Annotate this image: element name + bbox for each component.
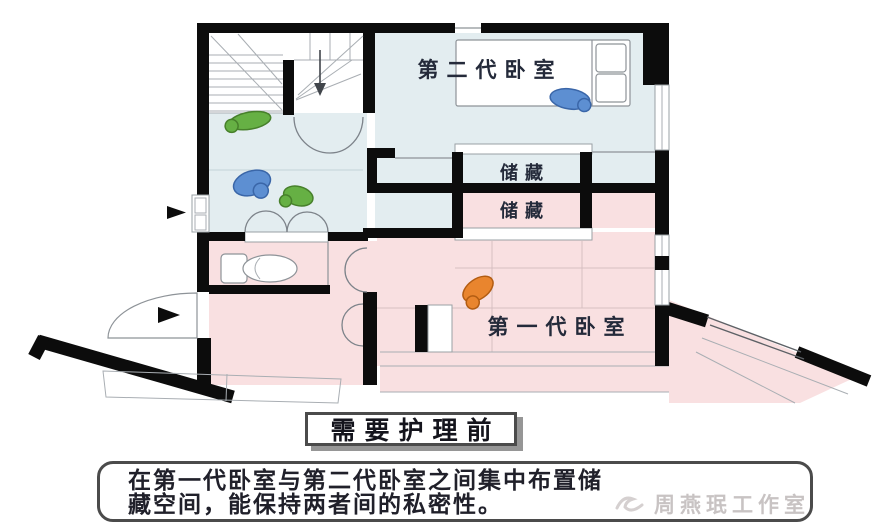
closet-bottom-floor: [592, 191, 655, 228]
entry-arrow-icon: [167, 206, 186, 219]
entrance-door-swing: [108, 293, 197, 338]
wall-porch-corner: [34, 338, 44, 357]
storage-top-track: [455, 144, 592, 154]
phase-title-text: 需要护理前: [321, 411, 500, 447]
stair-center-stub: [283, 60, 294, 115]
wall-entrance-divider: [363, 292, 377, 385]
bedroom2-label: 第二代卧室: [418, 58, 563, 82]
wall-bedroom1-pillar: [415, 305, 428, 352]
wall-left-upper: [197, 23, 209, 195]
wall-storage-right-bottom: [580, 191, 592, 228]
wall-stair-divider: [363, 33, 375, 113]
storage-top-label: 储藏: [499, 162, 550, 184]
bed-pillow-2: [596, 74, 626, 102]
wall-left-lower: [197, 338, 211, 385]
window-right-mullion: [655, 256, 669, 270]
bed-pillow-1: [596, 44, 626, 72]
watermark: 周燕珉工作室: [612, 489, 810, 519]
wall-corner-topright: [643, 23, 669, 85]
veranda-floor: [380, 366, 669, 392]
watermark-text: 周燕珉工作室: [654, 489, 810, 519]
wall-top: [197, 23, 668, 33]
watermark-bird-icon: [612, 491, 648, 517]
wall-storage-right-top: [580, 152, 592, 183]
floor-plan: 第二代卧室 储藏 储藏 第一代卧室: [0, 0, 882, 410]
closet-threshold: [245, 232, 328, 242]
wall-hall-south-right: [328, 232, 368, 241]
closet-top-floor: [592, 152, 655, 183]
wall-storage-mid: [367, 183, 668, 193]
wall-toilet-bottom: [209, 285, 330, 294]
storage-bottom-label: 储藏: [499, 200, 550, 222]
wall-corridor-bottom: [363, 228, 455, 238]
wall-storage-left: [452, 152, 463, 238]
storage-bottom-track: [455, 228, 592, 240]
phase-title-box: 需要护理前: [305, 412, 517, 446]
wall-hall-south-left: [197, 232, 245, 241]
bedroom1-closet: [428, 305, 452, 352]
screenshot-root: 第二代卧室 储藏 储藏 第一代卧室 需要护理前 在第一代卧室与第二代卧室之间集中…: [0, 0, 882, 526]
bedroom1-label: 第一代卧室: [488, 315, 633, 339]
toilet-bowl: [243, 255, 297, 282]
entrance-hall-floor: [209, 292, 363, 385]
